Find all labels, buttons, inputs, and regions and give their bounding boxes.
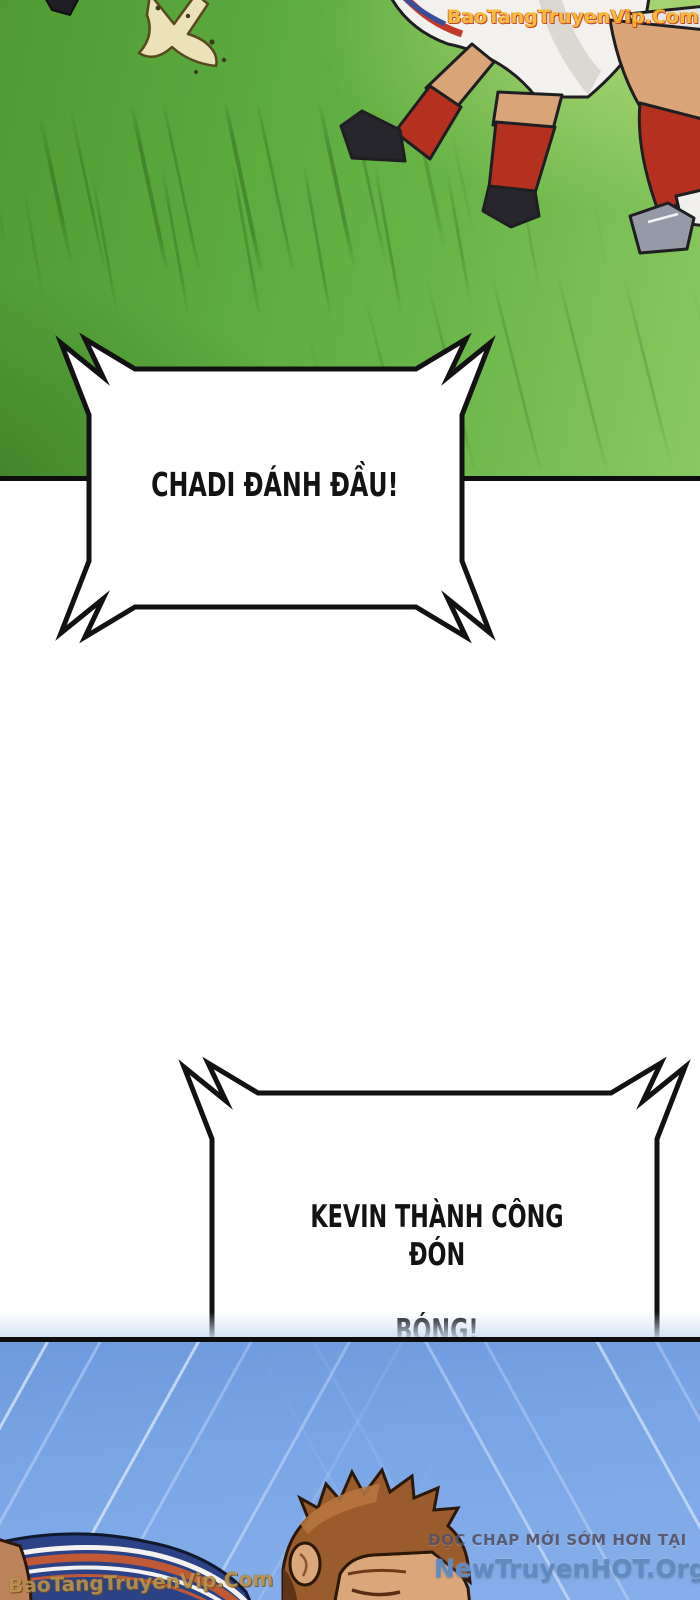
player-ear	[290, 1543, 320, 1585]
promo-site-name: NewTruyenHOT.Org	[434, 1554, 679, 1583]
promo-text-line: ĐỌC CHAP MỚI SỚM HƠN TẠI	[428, 1531, 678, 1549]
speech-bubble-1-text: CHADI ĐÁNH ĐẦU!	[100, 452, 450, 516]
dark-boot-tip	[44, 0, 80, 15]
grass-field-panel: BaoTangTruyenVip.Com	[0, 0, 700, 481]
comic-page: BaoTangTruyenVip.Com CHADI ĐÁNH ĐẦU! KEV…	[0, 0, 700, 1600]
turf-splash	[139, 0, 216, 66]
blue-ground-panel: BaoTangTruyenVip.Com ĐỌC CHAP MỚI SỚM HƠ…	[0, 1312, 700, 1600]
watermark-top-right: BaoTangTruyenVip.Com	[447, 6, 699, 28]
running-players	[341, 0, 700, 253]
black-cleat	[341, 111, 405, 161]
red-sock	[489, 122, 555, 193]
player-legs-illustration	[0, 0, 700, 476]
panel-top-glow	[0, 1312, 700, 1337]
black-cleat	[483, 186, 539, 227]
